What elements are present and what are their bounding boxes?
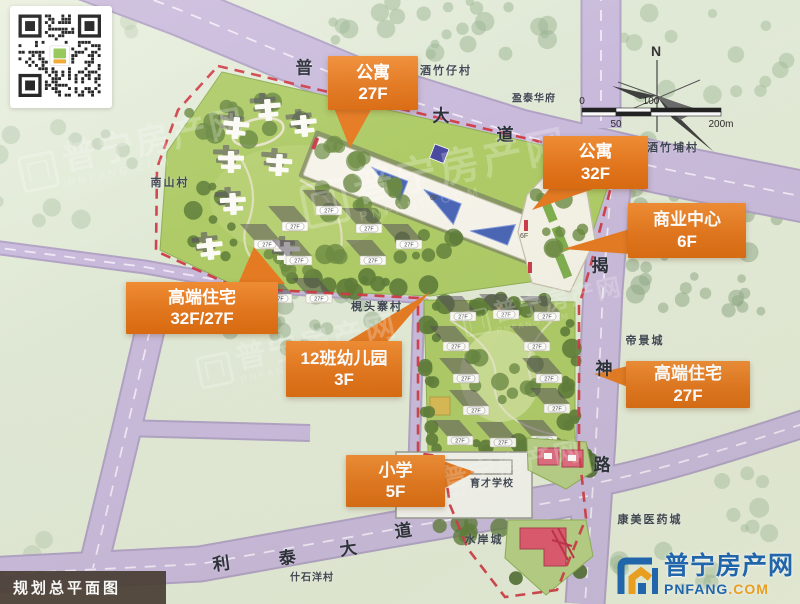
floor-mark: 27F xyxy=(262,243,272,249)
plan-title: 规划总平面图 xyxy=(0,571,166,604)
floor-mark: 27F xyxy=(552,407,562,413)
scale-0: 0 xyxy=(579,96,585,107)
road-label-da2: 大 xyxy=(338,533,358,560)
floor-mark: 27F xyxy=(368,259,378,265)
callout-line1: 商业中心 xyxy=(653,209,721,230)
village-nanshan: 南山村 xyxy=(151,174,190,190)
floor-mark-6f: 6F xyxy=(520,233,528,240)
callout-apartment-32f: 公寓 32F xyxy=(543,136,648,189)
floor-mark: 27F xyxy=(314,297,324,303)
site-plan-map: 27F27F27F27F27F27F27F27F27F27F27F27F27F2… xyxy=(0,0,800,604)
callout-line1: 高端住宅 xyxy=(168,287,236,308)
road-label-lu: 路 xyxy=(594,451,611,476)
pnfang-logo: 普宁房产网 PNFANG.COM xyxy=(612,552,794,598)
road-label-dao: 道 xyxy=(497,121,514,146)
floor-mark: 27F xyxy=(471,409,481,415)
road-label-shen: 神 xyxy=(596,355,613,380)
floor-mark: 27F xyxy=(532,345,542,351)
road-label-pu: 普 xyxy=(296,54,313,79)
callout-kindergarten-3f: 12班幼儿园 3F xyxy=(286,341,402,397)
scale-50: 50 xyxy=(610,119,622,130)
village-yingtai: 盈泰华府 xyxy=(512,90,556,105)
floor-mark: 27F xyxy=(498,441,508,447)
road-label-dao2: 道 xyxy=(393,515,413,542)
callout-line2: 6F xyxy=(677,231,697,252)
floor-mark: 27F xyxy=(458,315,468,321)
compass-north-label: N xyxy=(651,43,661,59)
scale-200m: 200m xyxy=(708,119,733,130)
callout-line2: 3F xyxy=(334,369,354,390)
callout-line1: 公寓 xyxy=(356,62,390,83)
logo-name: 普宁房产网 xyxy=(664,554,794,579)
qr-code xyxy=(10,6,112,108)
village-shuian: 水岸城 xyxy=(465,531,504,547)
floor-mark: 27F xyxy=(501,313,511,319)
callout-line2: 32F/27F xyxy=(170,308,233,329)
scale-100: 100 xyxy=(643,96,660,107)
floor-mark: 27F xyxy=(364,227,374,233)
floor-mark-6f: 6F xyxy=(430,195,438,202)
floor-mark: 27F xyxy=(290,225,300,231)
floor-mark: 27F xyxy=(542,315,552,321)
callout-line1: 小学 xyxy=(379,460,413,481)
floor-mark: 27F xyxy=(544,377,554,383)
callout-luxury-residence-32f-27f: 高端住宅 32F/27F xyxy=(126,282,278,334)
village-shishiyang: 什石洋村 xyxy=(290,569,334,584)
road-label-jie: 揭 xyxy=(592,252,609,277)
logo-domain: PNFANG.COM xyxy=(664,582,794,596)
callout-line2: 32F xyxy=(581,163,610,184)
floor-mark: 27F xyxy=(294,259,304,265)
floor-mark: 27F xyxy=(455,439,465,445)
callout-line1: 12班幼儿园 xyxy=(301,348,388,369)
callout-line2: 27F xyxy=(673,385,702,406)
floor-mark: 27F xyxy=(461,377,471,383)
plan-title-text: 规划总平面图 xyxy=(13,577,121,598)
village-dijing: 帝景城 xyxy=(626,332,665,348)
label-yucai-school: 育才学校 xyxy=(470,475,514,490)
village-jiuzhuzai: 酒竹仔村 xyxy=(420,62,472,78)
floor-mark: 27F xyxy=(451,345,461,351)
pnfang-logo-icon xyxy=(612,552,658,598)
road-label-tai: 泰 xyxy=(277,542,297,569)
callout-primary-school-5f: 小学 5F xyxy=(346,455,445,507)
callout-commercial-center-6f: 商业中心 6F xyxy=(628,203,746,258)
village-kangmei: 康美医药城 xyxy=(618,511,683,527)
callout-line2: 27F xyxy=(358,83,387,104)
village-jiuzhubu: 酒竹埔村 xyxy=(647,139,699,155)
callout-apartment-27f: 公寓 27F xyxy=(328,56,418,110)
callout-luxury-residence-27f: 高端住宅 27F xyxy=(626,361,750,408)
village-jiantouzhai: 梘头寨村 xyxy=(351,298,403,314)
road-label-da: 大 xyxy=(433,102,450,127)
callout-line1: 公寓 xyxy=(579,141,613,162)
callout-line1: 高端住宅 xyxy=(654,363,722,384)
floor-mark: 27F xyxy=(324,209,334,215)
floor-mark: 27F xyxy=(404,243,414,249)
callout-line2: 5F xyxy=(386,481,406,502)
road-label-li: 利 xyxy=(211,548,231,575)
